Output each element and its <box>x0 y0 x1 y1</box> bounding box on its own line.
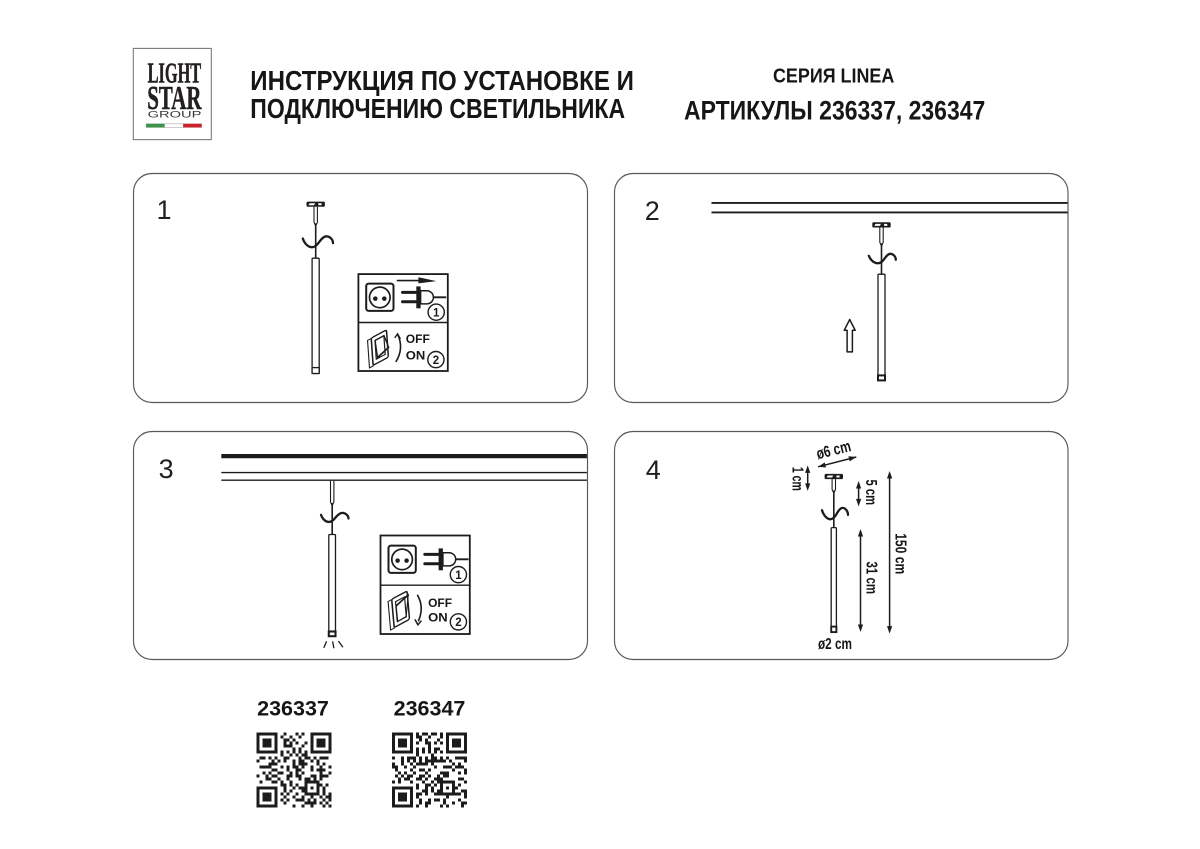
svg-text:OFF: OFF <box>428 596 452 610</box>
svg-text:OFF: OFF <box>406 332 430 346</box>
svg-text:3: 3 <box>159 454 174 484</box>
svg-text:ø2 cm: ø2 cm <box>818 636 852 653</box>
svg-text:ИНСТРУКЦИЯ ПО УСТАНОВКЕ И: ИНСТРУКЦИЯ ПО УСТАНОВКЕ И <box>250 65 634 96</box>
svg-text:1 cm: 1 cm <box>788 467 805 491</box>
svg-text:236347: 236347 <box>394 697 466 721</box>
svg-text:2: 2 <box>645 196 660 226</box>
svg-text:4: 4 <box>646 455 661 485</box>
svg-text:1: 1 <box>156 195 171 225</box>
svg-text:СЕРИЯ LINEA: СЕРИЯ LINEA <box>773 64 894 87</box>
svg-text:ON: ON <box>428 611 448 625</box>
svg-text:ПОДКЛЮЧЕНИЮ СВЕТИЛЬНИКА: ПОДКЛЮЧЕНИЮ СВЕТИЛЬНИКА <box>250 93 625 124</box>
svg-text:31 cm: 31 cm <box>862 562 879 595</box>
svg-text:АРТИКУЛЫ 236337, 236347: АРТИКУЛЫ 236337, 236347 <box>684 96 985 126</box>
svg-text:1: 1 <box>455 570 462 582</box>
svg-text:236337: 236337 <box>257 697 329 721</box>
svg-text:2: 2 <box>433 355 439 367</box>
svg-text:150 cm: 150 cm <box>892 533 909 574</box>
svg-text:1: 1 <box>433 308 440 320</box>
svg-text:ON: ON <box>406 349 426 363</box>
svg-text:5 cm: 5 cm <box>862 480 879 506</box>
svg-text:2: 2 <box>455 617 461 629</box>
svg-text:GROUP: GROUP <box>148 110 202 121</box>
